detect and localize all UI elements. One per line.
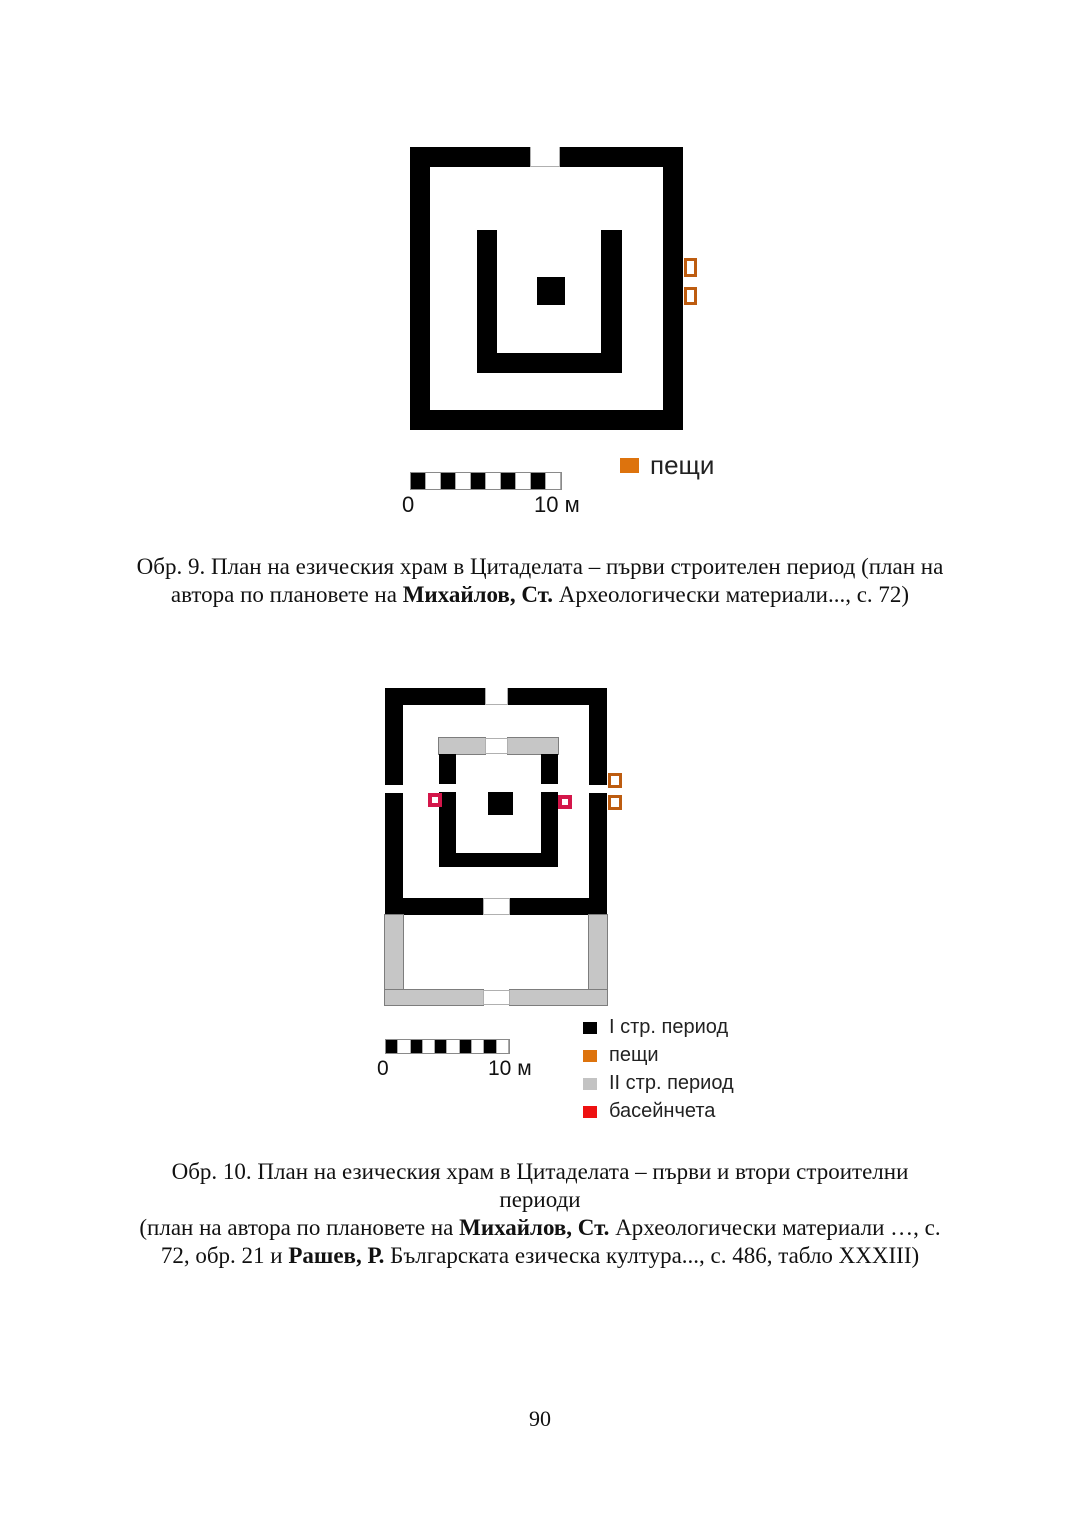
- sanctum-wall-left-upper: [439, 754, 456, 784]
- scale-segment: [411, 1040, 422, 1053]
- oven-marker: [608, 795, 622, 810]
- basin-legend-label: басейнчета: [609, 1100, 715, 1123]
- altar-square: [488, 792, 513, 815]
- inner-sanctum-wall-bottom: [477, 353, 622, 373]
- scale-segment: [397, 1040, 410, 1053]
- oven-legend-swatch: [583, 1050, 597, 1062]
- scale-segment: [545, 473, 561, 489]
- scale-segment: [485, 473, 501, 489]
- basin-legend-swatch: [583, 1106, 597, 1118]
- outer-wall-left: [410, 147, 430, 430]
- sanctum-gray-wall-left-segment: [439, 738, 485, 754]
- figure9-temple-plan: [410, 147, 683, 430]
- figure10-caption-line3: 72, обр. 21 и Рашев, Р. Българската езич…: [130, 1242, 950, 1270]
- scale-segment: [386, 1040, 397, 1053]
- legend-row-ovens: пещи: [583, 1046, 734, 1065]
- period2-legend-label: II стр. период: [609, 1072, 734, 1095]
- figure9-scale-end-label: 10 м: [534, 492, 580, 518]
- annex-wall-bottom-left-segment: [385, 990, 483, 1005]
- scale-segment: [446, 1040, 459, 1053]
- figure10-scale-start-label: 0: [377, 1057, 389, 1081]
- scale-segment: [471, 473, 485, 489]
- scale-segment: [425, 473, 441, 489]
- figure10-caption-line1: Обр. 10. План на езическия храм в Цитаде…: [130, 1158, 950, 1214]
- oven-marker: [684, 258, 697, 277]
- outer-wall-bottom-right-segment: [510, 898, 607, 915]
- figure9-legend: пещи: [620, 450, 714, 481]
- period1-legend-swatch: [583, 1022, 597, 1034]
- entrance-gap-north: [485, 688, 508, 705]
- basin-marker: [428, 793, 442, 807]
- entrance-gap-north: [530, 147, 560, 167]
- basin-marker: [558, 795, 572, 809]
- figure9-caption-line2: автора по плановете на Михайлов, Ст. Арх…: [130, 581, 950, 609]
- scale-segment: [501, 473, 515, 489]
- figure10-legend: I стр. период пещи II стр. период басейн…: [583, 1018, 734, 1121]
- figure9-caption: Обр. 9. План на езическия храм в Цитадел…: [130, 553, 950, 609]
- sanctum-wall-right-upper: [541, 754, 558, 784]
- legend-row-period2: II стр. период: [583, 1074, 734, 1093]
- outer-wall-right-upper: [589, 688, 607, 785]
- scale-segment: [531, 473, 545, 489]
- legend-row-basins: басейнчета: [583, 1102, 734, 1121]
- inner-sanctum-wall-left: [477, 230, 497, 373]
- sanctum-entrance-gap: [485, 738, 508, 754]
- scale-segment: [422, 1040, 435, 1053]
- oven-legend-label: пещи: [609, 1044, 659, 1067]
- altar-square: [537, 277, 565, 305]
- figure9-caption-line1: Обр. 9. План на езическия храм в Цитадел…: [130, 553, 950, 581]
- figure9-scale-bar: [410, 472, 562, 490]
- sanctum-gray-wall-right-segment: [508, 738, 558, 754]
- figure10-caption: Обр. 10. План на езическия храм в Цитаде…: [130, 1158, 950, 1270]
- legend-row-period1: I стр. период: [583, 1018, 734, 1037]
- scale-segment: [460, 1040, 471, 1053]
- period1-legend-label: I стр. период: [609, 1016, 728, 1039]
- outer-wall-left-upper: [385, 688, 403, 785]
- scale-segment: [515, 473, 531, 489]
- figure10-scale-bar: [385, 1039, 510, 1054]
- outer-wall-right: [663, 147, 683, 430]
- oven-legend-swatch: [620, 458, 639, 473]
- annex-wall-bottom-right-segment: [510, 990, 607, 1005]
- page-number: 90: [130, 1406, 950, 1432]
- inner-sanctum-wall-right: [601, 230, 622, 373]
- entrance-gap-south: [483, 898, 510, 915]
- oven-marker: [684, 287, 697, 305]
- scale-segment: [471, 1040, 484, 1053]
- outer-wall-right-lower: [589, 793, 607, 915]
- scale-segment: [496, 1040, 509, 1053]
- figure10-scale-end-label: 10 м: [488, 1057, 532, 1081]
- outer-wall-bottom-left-segment: [385, 898, 483, 915]
- annex-entrance-gap: [483, 990, 510, 1005]
- scale-segment: [435, 1040, 446, 1053]
- scale-segment: [441, 473, 455, 489]
- oven-legend-label: пещи: [650, 450, 714, 481]
- outer-wall-left-lower: [385, 793, 403, 915]
- sanctum-wall-bottom: [439, 853, 558, 867]
- figure10-caption-line2: (план на автора по плановете на Михайлов…: [130, 1214, 950, 1242]
- scale-segment: [455, 473, 471, 489]
- figure9-scale-start-label: 0: [402, 492, 414, 518]
- scale-segment: [411, 473, 425, 489]
- outer-wall-bottom: [410, 410, 683, 430]
- oven-marker: [608, 773, 622, 788]
- figure10-temple-plan: [385, 688, 607, 1005]
- period2-legend-swatch: [583, 1078, 597, 1090]
- scale-segment: [484, 1040, 495, 1053]
- document-page: 0 10 м пещи Обр. 9. План на езическия хр…: [0, 0, 1080, 1534]
